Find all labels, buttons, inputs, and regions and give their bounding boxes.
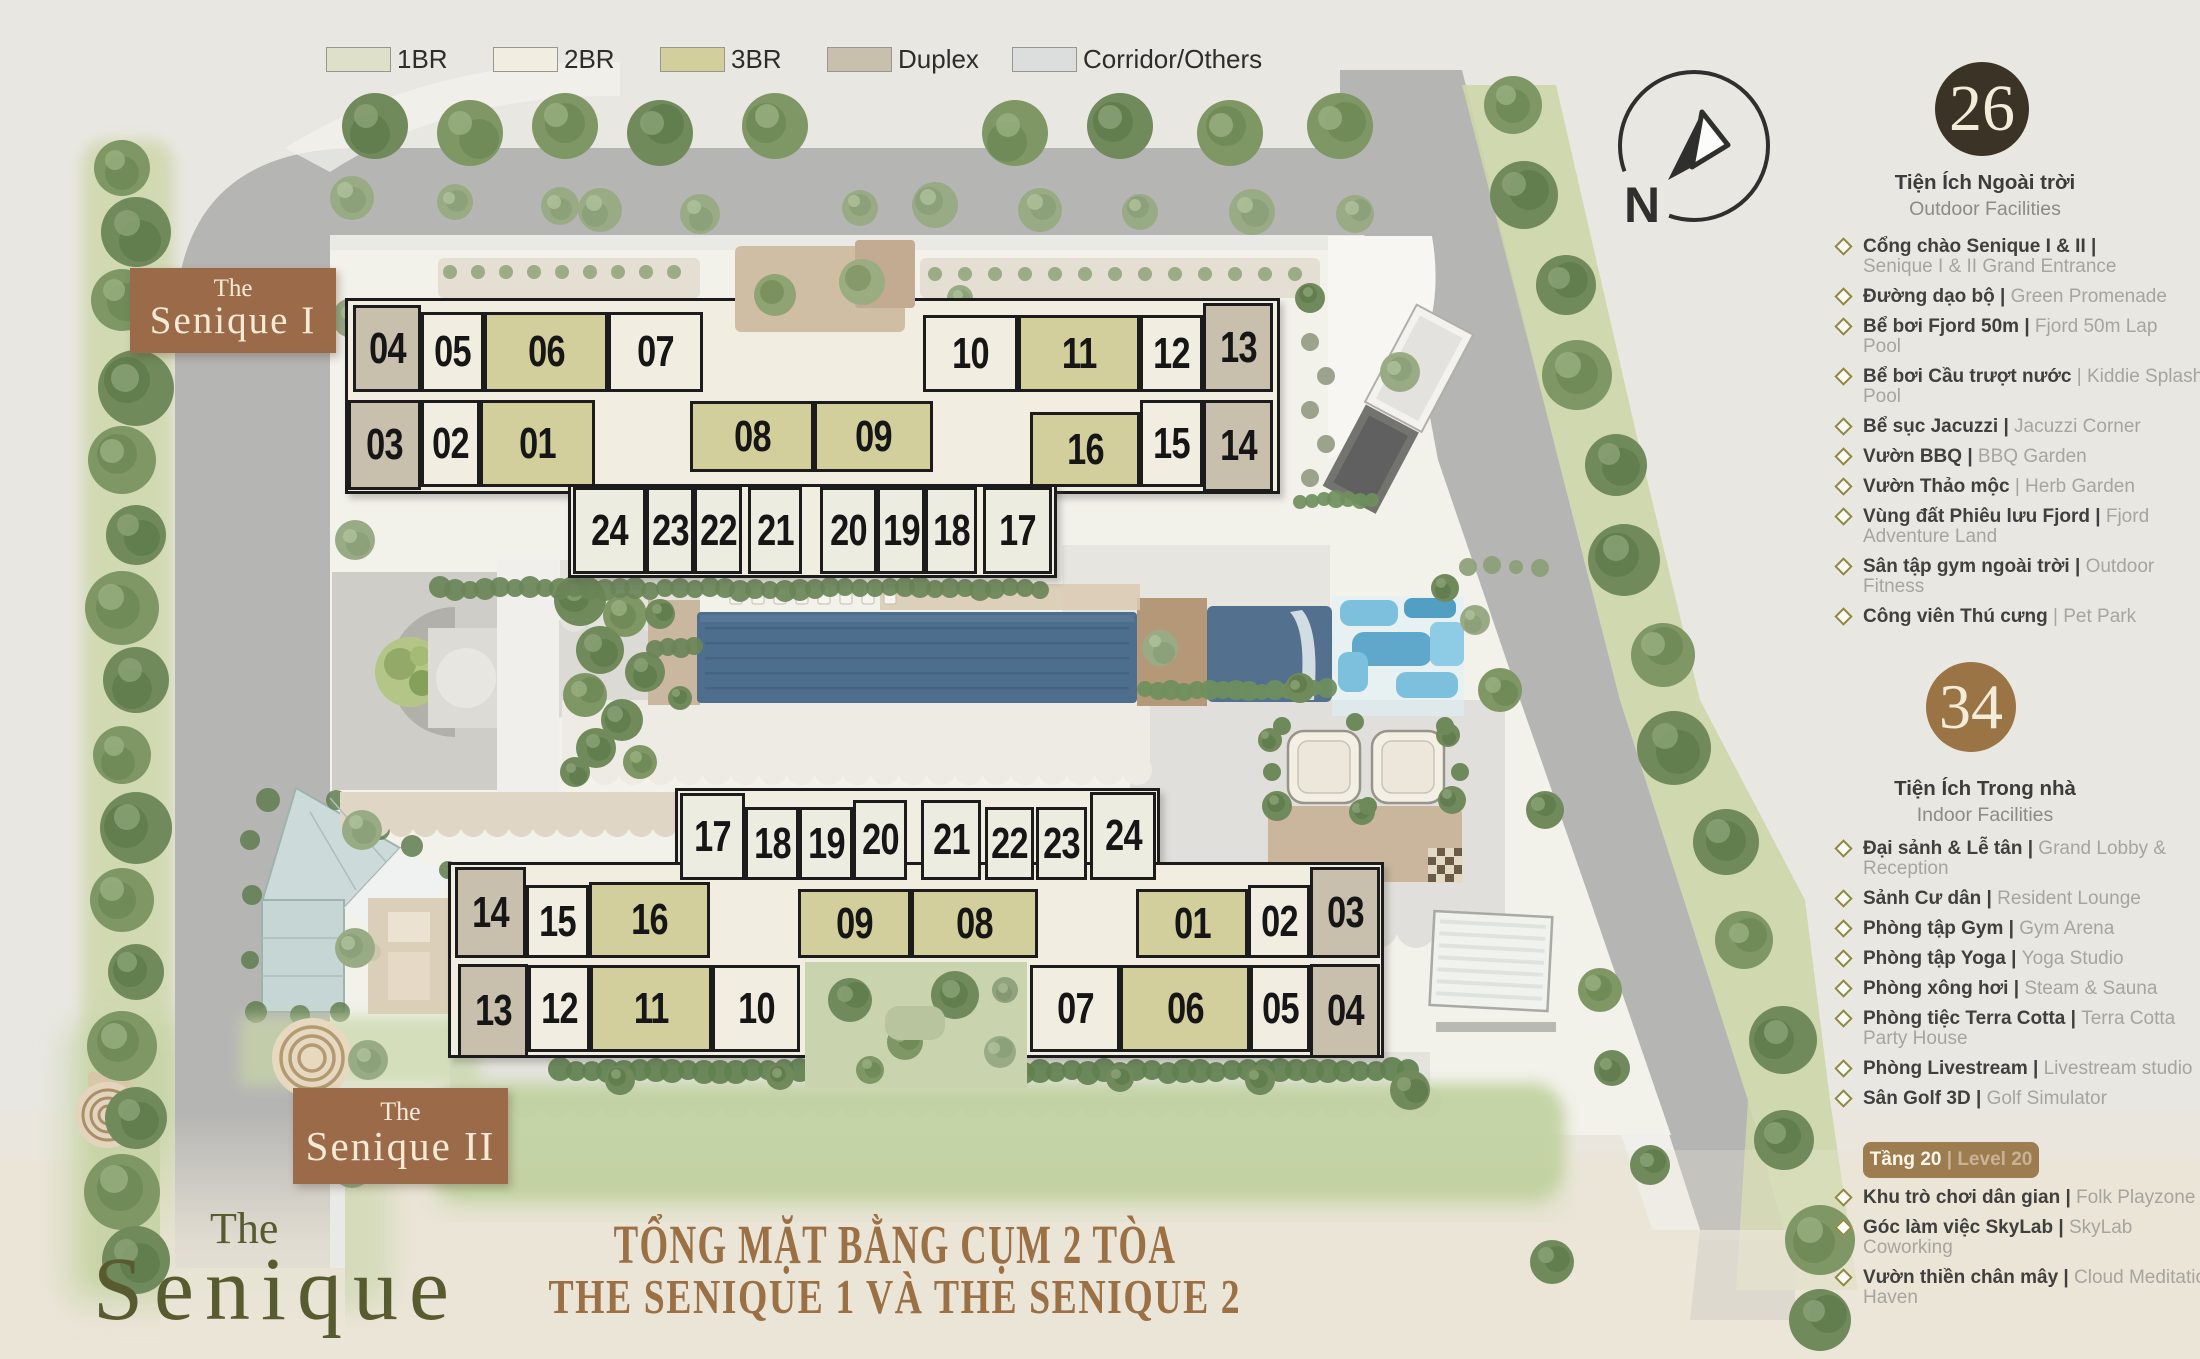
svg-text:N: N xyxy=(1624,177,1660,233)
